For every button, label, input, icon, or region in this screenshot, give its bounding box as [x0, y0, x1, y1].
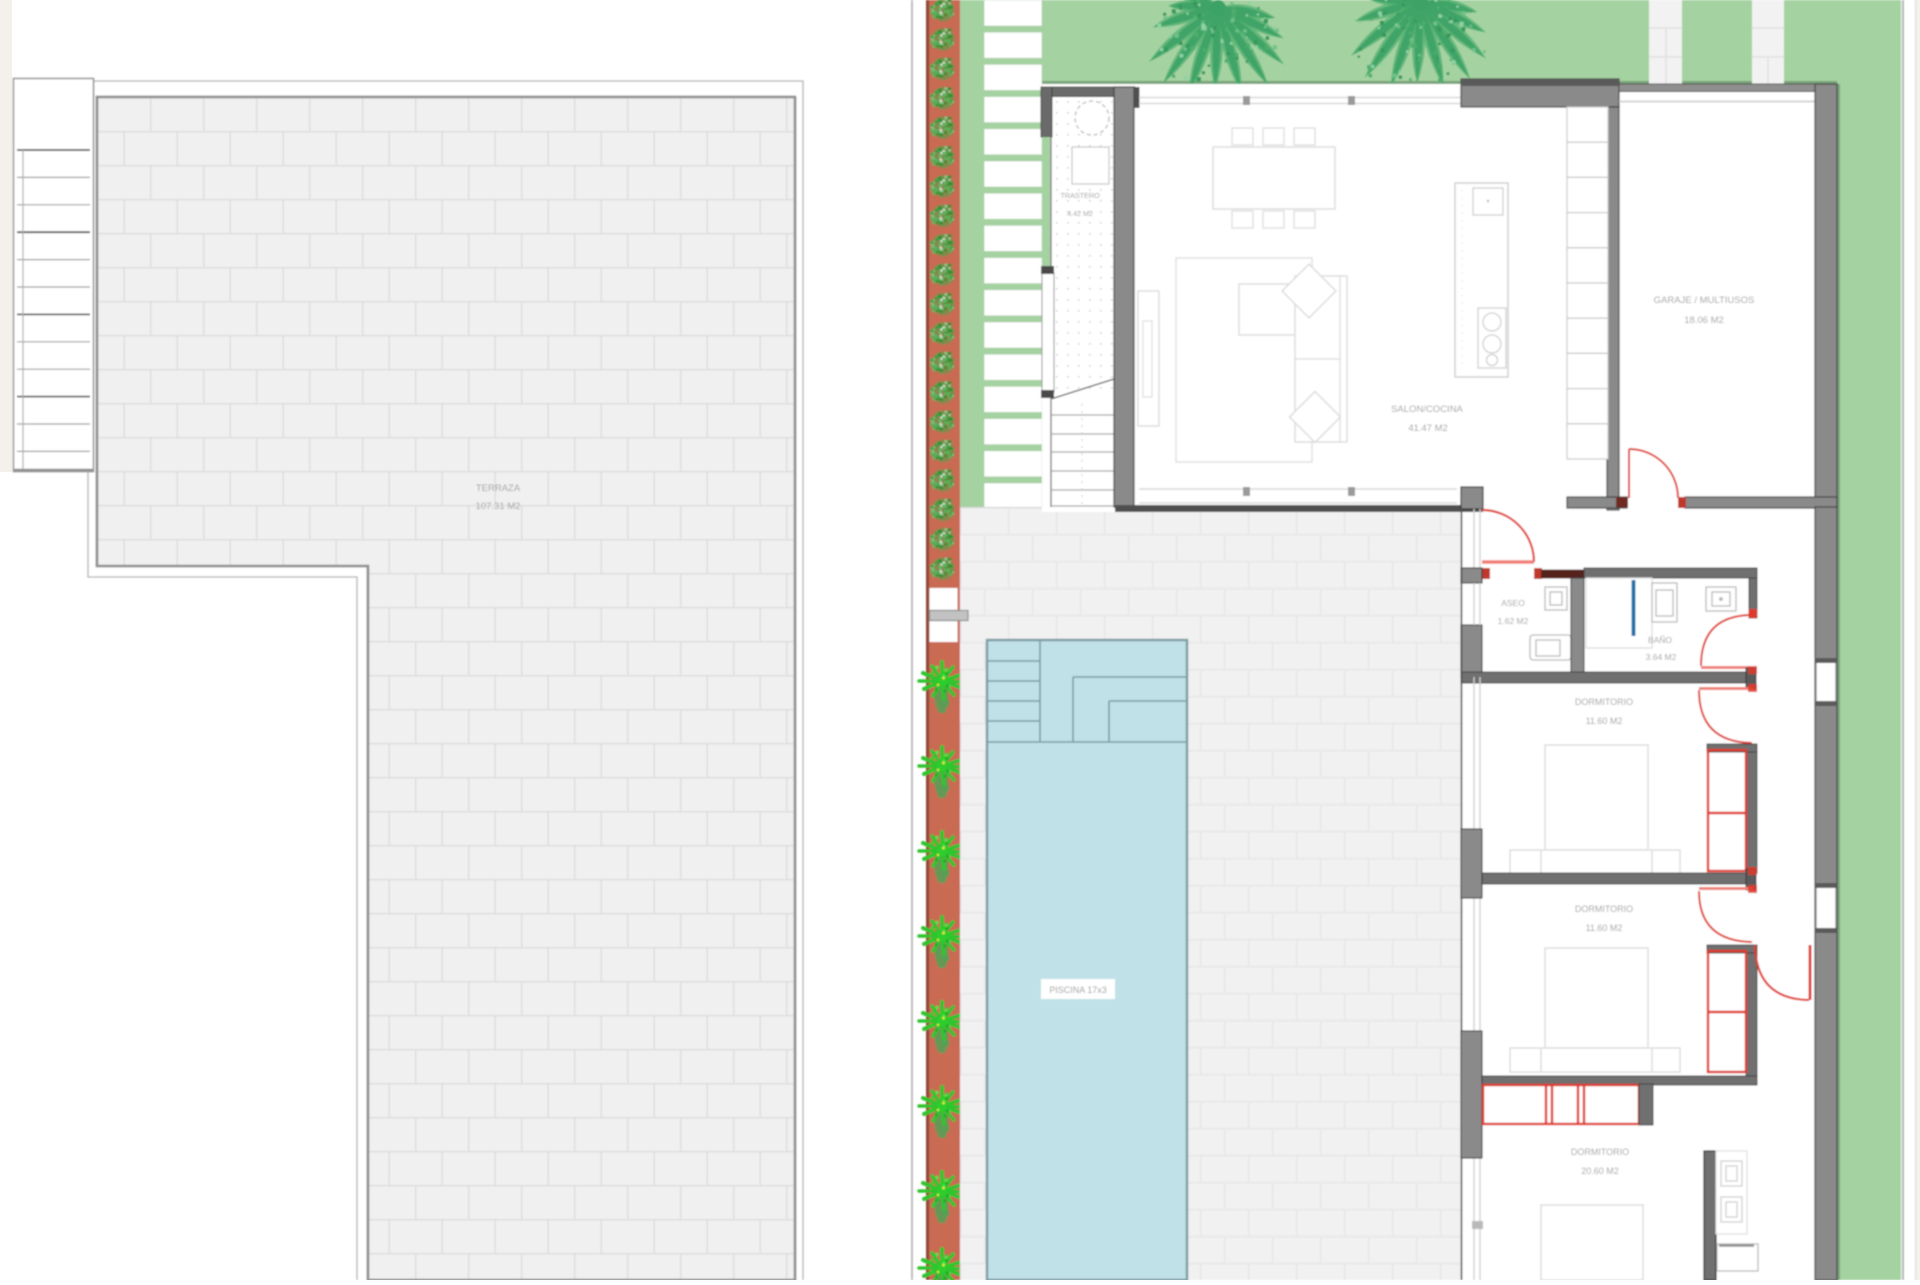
svg-text:TRASTERO: TRASTERO — [1060, 191, 1100, 200]
svg-text:11.60 M2: 11.60 M2 — [1586, 923, 1623, 933]
svg-text:ASEO: ASEO — [1501, 598, 1525, 608]
svg-text:18.06 M2: 18.06 M2 — [1684, 315, 1724, 326]
svg-text:TERRAZA: TERRAZA — [476, 483, 521, 494]
svg-text:107.31 M2: 107.31 M2 — [476, 501, 521, 512]
svg-text:SALON/COCINA: SALON/COCINA — [1391, 404, 1463, 415]
svg-text:DORMITORIO: DORMITORIO — [1575, 697, 1633, 707]
svg-text:GARAJE / MULTIUSOS: GARAJE / MULTIUSOS — [1654, 295, 1755, 306]
svg-text:11.60 M2: 11.60 M2 — [1586, 716, 1623, 726]
svg-text:BAÑO: BAÑO — [1648, 635, 1672, 645]
svg-text:4.42 M2: 4.42 M2 — [1067, 209, 1093, 218]
svg-text:1.62 M2: 1.62 M2 — [1498, 616, 1529, 626]
svg-text:DORMITORIO: DORMITORIO — [1575, 904, 1633, 914]
svg-text:20.60 M2: 20.60 M2 — [1581, 1166, 1619, 1176]
svg-text:PISCINA 17x3: PISCINA 17x3 — [1049, 985, 1107, 995]
svg-text:DORMITORIO: DORMITORIO — [1571, 1147, 1629, 1157]
svg-text:3.64 M2: 3.64 M2 — [1646, 652, 1677, 662]
svg-text:41.47 M2: 41.47 M2 — [1408, 423, 1448, 434]
